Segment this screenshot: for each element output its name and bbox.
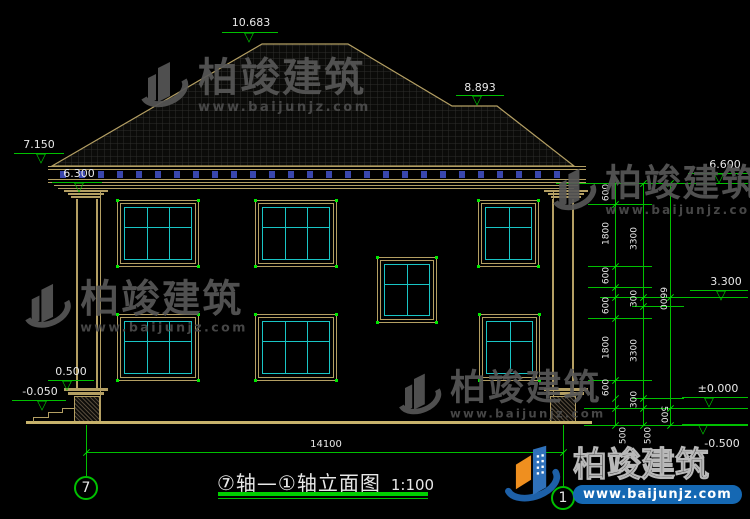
watermark-logo-icon <box>138 58 190 116</box>
brand-name: 柏竣建筑 <box>573 448 742 482</box>
watermark: 柏竣建筑 www.baijunjz.com <box>138 58 371 116</box>
window-mullion <box>307 208 308 259</box>
window-transom <box>263 227 329 228</box>
dim-text: 300 <box>631 279 640 319</box>
window-glazing <box>485 207 532 260</box>
window-2f-3 <box>478 200 539 267</box>
watermark-url: www.baijunjz.com <box>450 408 606 422</box>
dim-text: 500 <box>659 395 668 435</box>
left-base-cap <box>68 392 104 395</box>
dim-text: 6600 <box>658 279 667 319</box>
elevation-label: 0.500 <box>50 366 92 377</box>
dim-chain-inner <box>615 183 616 425</box>
window-glazing <box>262 321 330 374</box>
window-mullion <box>510 322 511 373</box>
window-mullion <box>169 208 170 259</box>
window-mullion <box>285 322 286 373</box>
watermark-name: 柏竣建筑 <box>450 370 606 406</box>
elevation-triangle-icon <box>716 289 726 302</box>
watermark-name: 柏竣建筑 <box>198 58 371 98</box>
cad-elevation-canvas: 600 1800 600 600 1800 600 500 3300 300 3… <box>0 0 750 519</box>
left-capital <box>71 196 101 198</box>
dim-chain-outer <box>670 183 671 425</box>
watermark-name: 柏竣建筑 <box>80 280 248 319</box>
dim-text: 3300 <box>631 219 640 259</box>
watermark: 柏竣建筑 www.baijunjz.com <box>22 280 248 336</box>
window-glazing <box>384 264 430 316</box>
title-underline-thick <box>218 492 428 496</box>
title-underline-thin <box>218 498 428 499</box>
watermark-logo-icon <box>550 165 598 218</box>
grip-dot <box>254 199 257 202</box>
watermark-url: www.baijunjz.com <box>198 100 371 115</box>
watermark: 柏竣建筑 www.baijunjz.com <box>396 370 606 422</box>
window-glazing <box>486 321 533 374</box>
grip-dot <box>254 313 257 316</box>
elevation-label: 10.683 <box>224 17 278 28</box>
window-mullion <box>407 265 408 315</box>
axis-bubble-7: 7 <box>74 476 98 500</box>
window-mullion <box>509 208 510 259</box>
brand-logo: 柏竣建筑 www.baijunjz.com <box>497 440 742 512</box>
elevation-label: 6.300 <box>56 168 102 179</box>
eave-line <box>48 182 586 183</box>
left-capital <box>64 190 108 192</box>
window-mullion <box>285 208 286 259</box>
elevation-triangle-icon <box>74 181 84 194</box>
step-tread <box>48 412 62 413</box>
dentil-band <box>60 171 572 178</box>
window-mullion <box>307 322 308 373</box>
elevation-triangle-icon <box>244 31 254 44</box>
grip-dot <box>478 313 481 316</box>
window-stair <box>377 257 437 323</box>
window-transom <box>125 227 191 228</box>
brand-logo-icon <box>497 440 567 512</box>
elevation-label: 3.300 <box>702 276 750 287</box>
grip-dot <box>116 199 119 202</box>
elevation-triangle-icon <box>37 399 47 412</box>
axis-number: 7 <box>82 480 91 496</box>
watermark: 柏竣建筑 www.baijunjz.com <box>550 165 750 218</box>
watermark-name: 柏竣建筑 <box>605 165 750 202</box>
eave-moulding-line <box>58 188 574 189</box>
dim-text: 600 <box>603 286 612 326</box>
elevation-label: -0.050 <box>14 386 66 397</box>
window-transom <box>263 341 329 342</box>
eave-line <box>48 166 586 167</box>
window-2f-2 <box>255 200 337 267</box>
dim-text: 300 <box>631 380 640 420</box>
elevation-triangle-icon <box>704 396 714 409</box>
window-2f-1 <box>117 200 199 267</box>
elevation-leader <box>682 424 748 425</box>
watermark-url: www.baijunjz.com <box>605 204 750 218</box>
grip-dot <box>477 199 480 202</box>
eave-line <box>48 169 586 170</box>
dim-text: 1800 <box>603 214 612 254</box>
window-transom <box>125 341 191 342</box>
dim-text: 3300 <box>631 331 640 371</box>
elevation-leader <box>682 397 748 398</box>
dim-line-total <box>86 452 563 453</box>
elevation-triangle-icon <box>36 152 46 165</box>
brand-url: www.baijunjz.com <box>573 485 742 504</box>
elevation-triangle-icon <box>472 94 482 107</box>
watermark-logo-icon <box>22 280 72 336</box>
window-glazing <box>262 207 330 260</box>
elevation-label: ±0.000 <box>690 383 746 394</box>
right-column-shaft <box>552 199 574 388</box>
window-transom <box>487 341 532 342</box>
watermark-url: www.baijunjz.com <box>80 321 248 336</box>
window-transom <box>385 284 429 285</box>
dim-text: 1800 <box>603 328 612 368</box>
elevation-label: 8.893 <box>456 82 504 93</box>
grip-dot <box>376 256 379 259</box>
dim-text-total-width: 14100 <box>300 440 352 450</box>
window-glazing <box>124 207 192 260</box>
elevation-label: 7.150 <box>16 139 62 150</box>
watermark-logo-icon <box>396 370 443 422</box>
eave-line <box>48 179 586 180</box>
window-1f-2 <box>255 314 337 381</box>
window-mullion <box>147 208 148 259</box>
left-pedestal <box>74 396 100 422</box>
step-tread <box>33 417 48 418</box>
terrace-line <box>62 408 74 409</box>
elevation-triangle-icon <box>698 423 708 436</box>
window-transom <box>486 227 531 228</box>
eave-moulding-line <box>54 185 578 186</box>
